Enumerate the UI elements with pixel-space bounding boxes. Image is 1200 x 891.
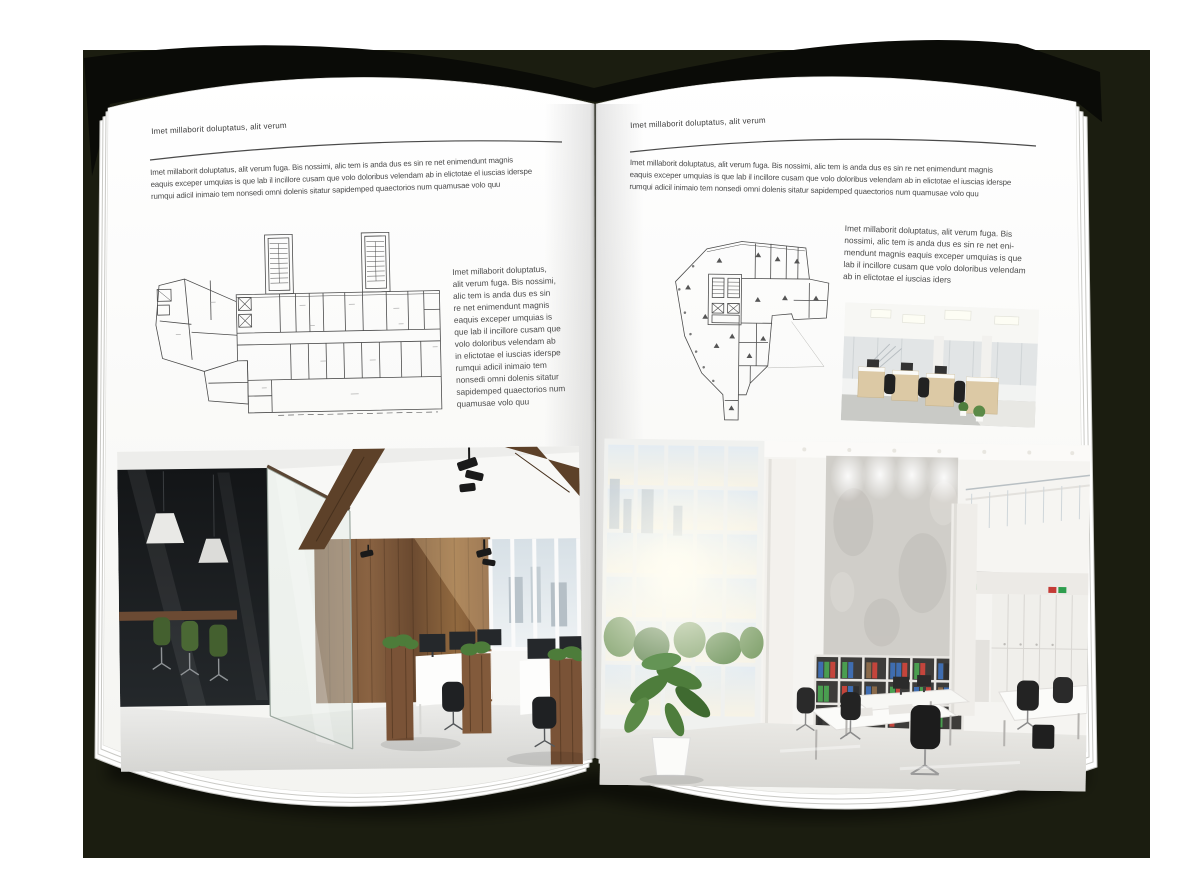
photo-office-wood-interior bbox=[117, 445, 583, 773]
conference-table bbox=[119, 610, 237, 620]
plant-pot bbox=[652, 737, 691, 776]
brochure-mockup: Imet millaborit doluptatus, alit verum I… bbox=[0, 0, 1200, 891]
window-wall bbox=[490, 538, 581, 649]
safety-sign-red bbox=[1048, 587, 1056, 593]
safety-sign-green bbox=[1058, 587, 1066, 593]
bin bbox=[1032, 725, 1054, 749]
conference-room-dark bbox=[117, 468, 270, 707]
floor-plan-right-walls bbox=[674, 241, 829, 421]
left-side-column: Imet millaborit doluptatus, alit verum f… bbox=[452, 262, 583, 410]
photo-workstations-small bbox=[841, 302, 1039, 427]
floor-plan-left-walls bbox=[154, 231, 442, 417]
floor-plan-left-annotations bbox=[175, 297, 438, 397]
right-side-column: Imet millaborit doluptatus, alit verum f… bbox=[843, 222, 1060, 290]
photo-office-white-hall bbox=[600, 438, 1091, 793]
floor-plan-right bbox=[645, 217, 841, 429]
right-header-rule bbox=[628, 126, 1040, 158]
floor-plan-right-markers bbox=[684, 252, 820, 412]
floor-plan-left bbox=[150, 227, 450, 425]
